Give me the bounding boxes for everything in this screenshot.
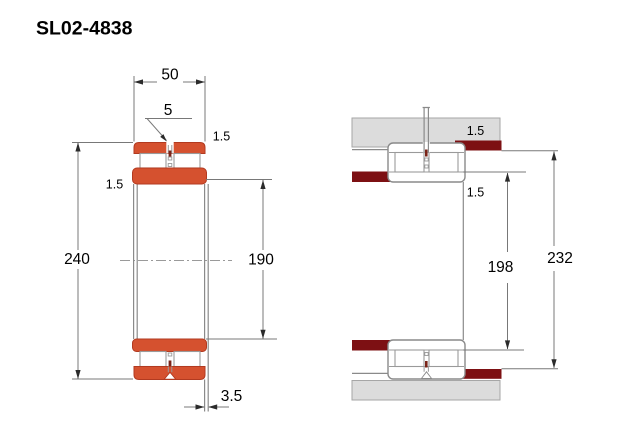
arrowhead-left	[208, 404, 217, 409]
arrowhead-up	[75, 143, 80, 152]
roller-left	[395, 153, 424, 173]
face-offset-value: 3.5	[221, 388, 243, 405]
roller-right	[429, 153, 458, 173]
inner-ring-band	[133, 339, 207, 352]
shaft-shoulder-value: 198	[488, 259, 514, 276]
roller-left	[140, 154, 166, 169]
mounted-section-bottom	[388, 340, 465, 379]
inner-chamfer-label: 1.5	[106, 178, 123, 192]
shaft-fillet-label: 1.5	[467, 186, 484, 200]
arrowhead-down	[505, 340, 510, 349]
dim-lube-hole: 5	[145, 102, 192, 142]
width-value: 50	[161, 67, 179, 84]
roller-left	[140, 352, 166, 367]
mounting-arrangement-view: 1.5 1.5 198 232	[352, 108, 573, 401]
drawing-canvas: SL02-4838	[0, 0, 640, 440]
arrowhead-down	[551, 359, 556, 368]
lube-hole-mark	[425, 150, 428, 157]
roller-right	[174, 352, 200, 367]
rib-mark	[168, 157, 172, 160]
shaft-shoulder-top	[352, 172, 391, 183]
arrowhead-left	[134, 79, 143, 84]
arrowhead-right	[196, 79, 205, 84]
bearing-technical-drawing: SL02-4838	[0, 0, 640, 440]
dim-face-offset: 3.5	[184, 388, 242, 410]
inner-ring-band	[133, 168, 207, 184]
shaft-shoulder-bottom	[352, 340, 391, 351]
bearing-section-top	[133, 142, 207, 184]
arrowhead-up	[260, 180, 265, 189]
roller-left	[395, 350, 424, 367]
dim-bore-diameter: 190	[206, 180, 277, 340]
lube-hole-value: 5	[164, 102, 173, 119]
roller-right	[429, 350, 458, 367]
page-title: SL02-4838	[36, 18, 133, 40]
housing-shoulder-value: 232	[547, 250, 573, 267]
mounted-section-top	[388, 142, 465, 182]
outer-diameter-value: 240	[64, 251, 90, 268]
arrowhead-up	[505, 173, 510, 182]
housing-block-bottom	[352, 381, 500, 401]
arrowhead-up	[551, 151, 556, 160]
arrowhead-down	[260, 330, 265, 339]
rib-mark	[168, 353, 172, 356]
bore-diameter-value: 190	[248, 252, 274, 269]
front-cross-section-view: 50 5 1.5 1.5 240 190	[64, 67, 277, 412]
housing-fillet-label: 1.5	[467, 124, 484, 138]
arrowhead-right	[196, 404, 205, 409]
arrowhead-down	[75, 370, 80, 379]
bearing-section-bottom	[133, 339, 207, 380]
rib-mark	[168, 164, 172, 167]
lube-hole-mark	[425, 361, 428, 368]
roller-right	[174, 154, 200, 169]
outer-chamfer-label: 1.5	[213, 130, 230, 144]
lube-hole-mark	[169, 151, 172, 158]
